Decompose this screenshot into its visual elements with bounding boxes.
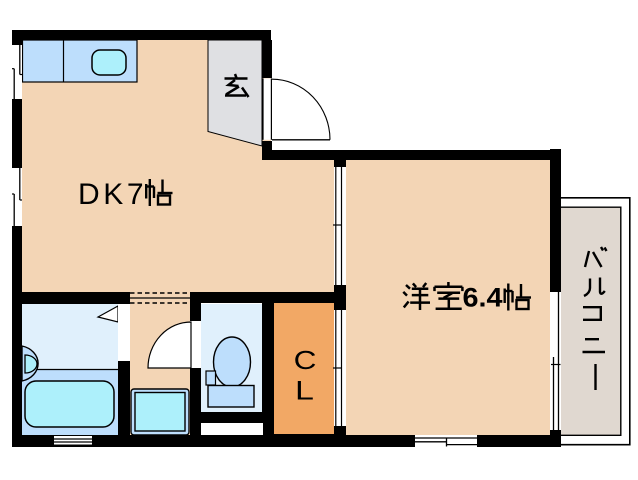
svg-text:6.4: 6.4 bbox=[463, 283, 503, 313]
svg-text:L: L bbox=[295, 375, 314, 406]
svg-text:C: C bbox=[294, 347, 317, 375]
svg-text:DK7: DK7 bbox=[78, 178, 147, 211]
